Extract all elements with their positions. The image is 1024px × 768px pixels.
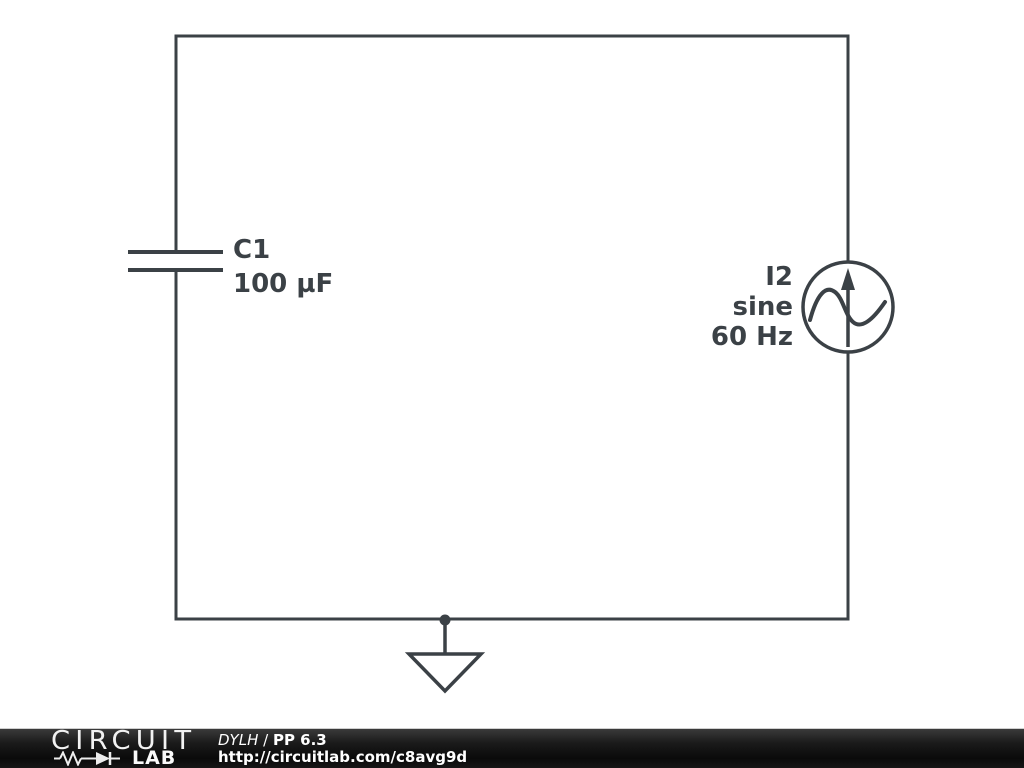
current-source-label-block: I2 sine 60 Hz bbox=[593, 262, 793, 352]
current-source-symbol bbox=[803, 262, 893, 352]
capacitor-value-label: 100 µF bbox=[233, 271, 333, 297]
circuitlab-logo: CIRCUIT LAB bbox=[51, 730, 189, 766]
capacitor-symbol bbox=[128, 252, 223, 270]
logo-circuit-text: CIRCUIT bbox=[51, 730, 196, 752]
circuit-drawing bbox=[0, 0, 1024, 728]
schematic-export-page: C1 100 µF I2 sine 60 Hz CIRCUIT bbox=[0, 0, 1024, 768]
ground-triangle bbox=[409, 654, 481, 691]
circuit-title: PP 6.3 bbox=[273, 731, 327, 749]
circuit-url: http://circuitlab.com/c8avg9d bbox=[218, 749, 467, 766]
author-name: DYLH bbox=[218, 731, 258, 749]
attribution-separator: / bbox=[258, 731, 273, 749]
attribution-line: DYLH / PP 6.3 bbox=[218, 732, 467, 749]
current-source-frequency-label: 60 Hz bbox=[593, 322, 793, 352]
current-source-waveform-label: sine bbox=[593, 292, 793, 322]
ground-symbol bbox=[409, 615, 481, 692]
current-source-ref-label: I2 bbox=[593, 262, 793, 292]
footer-bar: CIRCUIT LAB DYLH / PP 6.3 bbox=[0, 728, 1024, 768]
wire-top-loop bbox=[176, 36, 848, 263]
attribution-block: DYLH / PP 6.3 http://circuitlab.com/c8av… bbox=[218, 732, 467, 766]
capacitor-ref-label: C1 bbox=[233, 237, 270, 263]
